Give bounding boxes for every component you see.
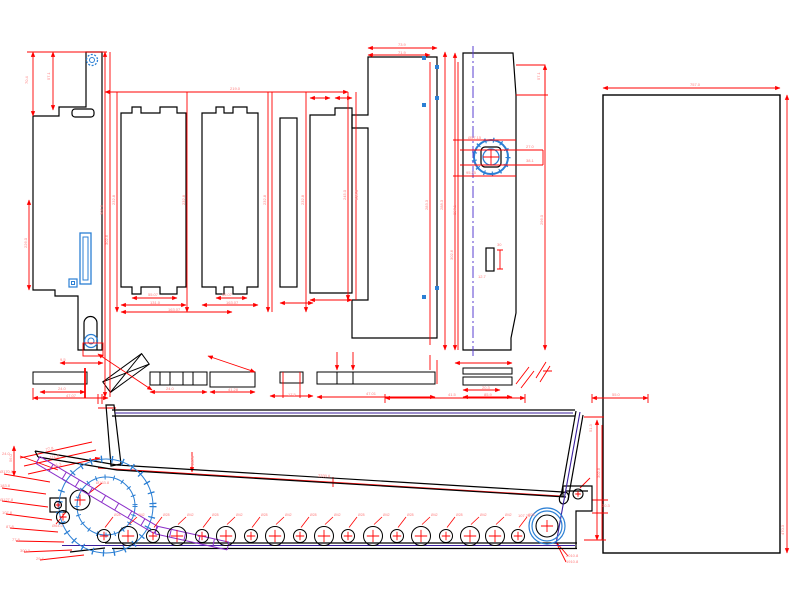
end-bracket — [563, 486, 592, 548]
dim-label: 107.25 — [518, 513, 531, 518]
panel-left — [33, 52, 102, 350]
dim-label: 9.5 — [60, 357, 66, 362]
roller-label: Ø42 — [480, 513, 487, 517]
dim-label: 51.3 — [588, 423, 593, 432]
fastener-square — [435, 286, 439, 290]
flight-segment — [155, 526, 229, 550]
dim-label: 85.9 — [484, 392, 493, 397]
dim-label: 219.0 — [230, 86, 241, 91]
cad-canvas[interactable]: Ø28Ø42Ø28Ø42Ø28Ø42Ø28Ø42Ø28Ø42Ø28Ø42Ø28Ø… — [0, 0, 800, 600]
roller-label: Ø42 — [138, 513, 145, 517]
roller-label: Ø42 — [334, 513, 341, 517]
dim-label: 47.07 — [66, 393, 77, 398]
dim-label: Ø170.0 — [0, 469, 14, 474]
dim-label: 70.4 — [24, 75, 29, 84]
hole-left-bottom — [85, 335, 98, 348]
dim-label: 297.1 — [452, 204, 457, 215]
inlet-post — [106, 405, 121, 466]
roller-label: Ø28 — [358, 513, 365, 517]
dim-label: 757.0 — [690, 82, 701, 87]
dim-label: Ø127.8 — [0, 497, 14, 502]
dim-label: 30.3 — [602, 503, 611, 508]
dim-label: 131.0 — [150, 300, 161, 305]
roller-label: Ø28 — [114, 513, 121, 517]
dim-label: 2330.8 — [318, 473, 331, 479]
roller-label: Ø42 — [383, 513, 390, 517]
roller-label: Ø28 — [212, 513, 219, 517]
dim-label: 232.8 — [262, 194, 267, 205]
roller-label: Ø42 — [187, 513, 194, 517]
dim-label: 296.0 — [539, 214, 544, 225]
dim-label: 245.0 — [354, 189, 359, 200]
dim-label: 288.3 — [439, 199, 444, 210]
dim-label: 2010.8 — [566, 553, 579, 558]
wheel — [55, 502, 62, 509]
dim-label: 300.0 — [20, 548, 31, 553]
slot-left-panel — [80, 233, 91, 284]
dim-label: 12.7 — [478, 274, 487, 279]
dim-label: 107.8 — [2, 510, 13, 515]
incline-lower — [38, 457, 566, 497]
dim-label: 245.0 — [342, 189, 347, 200]
fastener-square — [422, 56, 426, 60]
dim-label: 163.07 — [226, 300, 239, 305]
incline-upper — [35, 451, 563, 492]
dim-label: 47.01 — [366, 391, 377, 396]
dim-label: 108.0 — [190, 455, 195, 466]
fastener-square — [435, 96, 439, 100]
roller-label: Ø42 — [236, 513, 243, 517]
panel-3 — [202, 107, 258, 294]
dim-label: 30 — [497, 242, 502, 247]
roller: Ø42 — [461, 513, 487, 546]
roller-label: Ø42 — [505, 513, 512, 517]
dim-label: 24.0 — [58, 386, 67, 391]
discharge-chute — [561, 411, 576, 496]
dim-label: 55.07 — [148, 292, 159, 297]
roller-label: Ø28 — [261, 513, 268, 517]
dim-label: 73.9 — [398, 42, 407, 47]
roller: Ø28 — [391, 513, 414, 543]
roller: Ø42 — [315, 513, 341, 546]
dim-label: 226.0 — [23, 237, 28, 248]
dim-label: 71.9 — [398, 50, 407, 55]
dim-label: 57.1 — [46, 71, 51, 80]
roller: Ø28 — [440, 513, 463, 543]
roller: Ø28 — [342, 513, 365, 543]
panel-6 — [463, 53, 516, 350]
roller-label: Ø42 — [285, 513, 292, 517]
dim-label: Ø57.15 — [468, 135, 482, 140]
fastener-square — [435, 65, 439, 69]
dim-label: 20.3 — [482, 385, 491, 390]
dim-label: 55.07 — [222, 292, 233, 297]
roller: Ø28 — [98, 513, 121, 543]
roller: Ø28 — [294, 513, 317, 543]
hole-top-left — [87, 55, 98, 66]
roller: Ø42 — [412, 513, 438, 546]
dim-label: 87.8 — [6, 524, 15, 529]
roller-label: Ø28 — [310, 513, 317, 517]
roller-label: Ø42 — [431, 513, 438, 517]
fastener-square — [422, 295, 426, 299]
dim-label: 24.0 — [166, 386, 175, 391]
panel-2 — [121, 107, 186, 294]
dim-label: 24.0 — [2, 451, 11, 456]
roller-row: Ø28Ø42Ø28Ø42Ø28Ø42Ø28Ø42Ø28Ø42Ø28Ø42Ø28Ø… — [98, 513, 535, 546]
dim-label: Ø163.8 — [96, 480, 110, 485]
dim-label: 38.1 — [526, 158, 535, 163]
dim-label: 302.6 — [449, 249, 454, 260]
dim-label: 302.6 — [99, 204, 104, 215]
dim-label: 77.8 — [12, 537, 21, 542]
dim-label: 95.25 — [466, 170, 477, 175]
dim-label: 41.28 — [228, 387, 239, 392]
dim-label: Ø64.0 — [52, 523, 64, 528]
dim-label: 302.6 — [104, 234, 109, 245]
flat-pattern-panels — [33, 52, 780, 553]
dim-label: 232.8 — [181, 194, 186, 205]
roller-label: Ø28 — [456, 513, 463, 517]
cad-viewport[interactable]: Ø28Ø42Ø28Ø42Ø28Ø42Ø28Ø42Ø28Ø42Ø28Ø42Ø28Ø… — [0, 0, 800, 600]
dim-label: 27.0 — [526, 144, 535, 149]
dim-label: 1910.8 — [566, 559, 579, 564]
panel-4 — [280, 118, 297, 287]
dim-label: 17.5 — [288, 392, 297, 397]
fastener-square — [422, 103, 426, 107]
panel-right-blank — [603, 95, 780, 553]
roller: Ø28 — [196, 513, 219, 543]
dim-label: 41.5 — [448, 392, 457, 397]
dim-label: 232.8 — [300, 194, 305, 205]
roller: Ø42 — [486, 513, 512, 546]
dim-label: 470.3 — [780, 524, 785, 535]
roller: Ø42 — [266, 513, 292, 546]
dim-label: 232.8 — [111, 194, 116, 205]
square-symbol — [69, 279, 77, 287]
dim-label: 111.8 — [49, 453, 60, 460]
dim-label: 55.0 — [612, 392, 621, 397]
roller-label: Ø28 — [163, 513, 170, 517]
dim-label: 57.1 — [536, 71, 541, 80]
roller: Ø28 — [245, 513, 268, 543]
dimension-lines — [2, 48, 787, 562]
dim-label: 302.8 — [596, 467, 601, 478]
dim-label: 163.07 — [168, 307, 181, 312]
roller: Ø42 — [364, 513, 390, 546]
roller-label: Ø28 — [407, 513, 414, 517]
conveyor-side-elevation: Ø28Ø42Ø28Ø42Ø28Ø42Ø28Ø42Ø28Ø42Ø28Ø42Ø28Ø… — [35, 405, 592, 553]
chain-loop — [59, 459, 565, 553]
dim-label: 283.3 — [424, 199, 429, 210]
wheel — [536, 515, 558, 537]
dim-label: 183.8 — [0, 483, 11, 488]
dim-label: 29.4 — [36, 556, 45, 561]
